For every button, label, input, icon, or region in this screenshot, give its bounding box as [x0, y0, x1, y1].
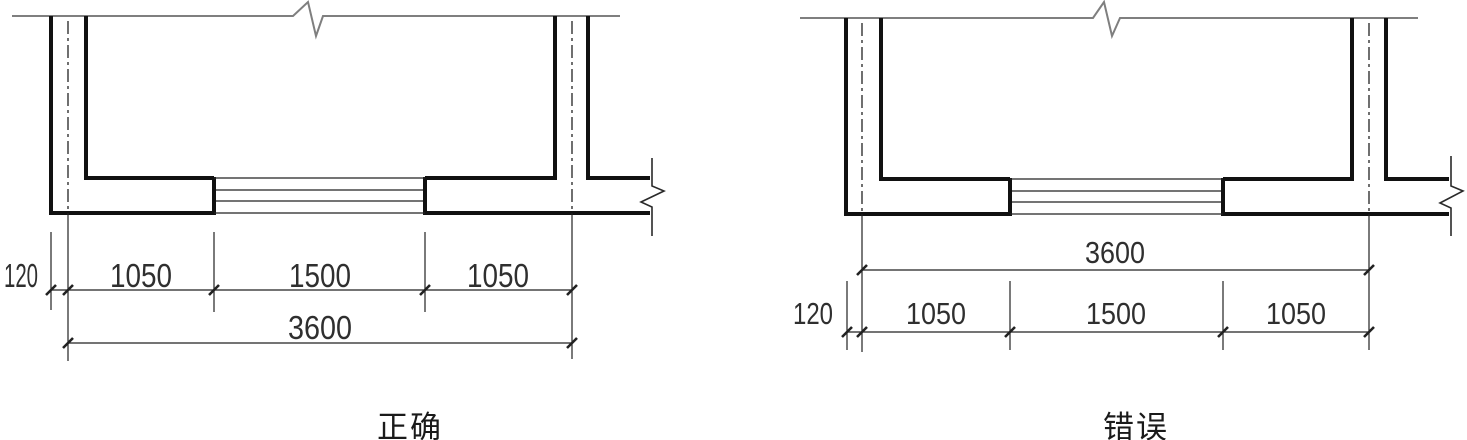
diagram-canvas: 120 1050 1500 1050 3600	[0, 0, 1467, 440]
caption-correct: 正确	[340, 402, 480, 440]
wall-outline	[49, 16, 650, 215]
axis-lines	[68, 21, 572, 213]
dim-middle-label: 1500	[1086, 296, 1146, 331]
window-symbol	[1010, 179, 1223, 214]
dim-left-label: 1050	[906, 296, 966, 331]
figure-wrong: 3600 120 1050 1500 1050	[760, 0, 1467, 372]
dim-offset-label: 120	[4, 257, 38, 294]
wall-break-symbol	[641, 158, 664, 236]
dim-offset-label: 120	[793, 296, 833, 331]
figure-correct: 120 1050 1500 1050 3600	[0, 0, 700, 372]
upper-wall-break-line	[800, 2, 1418, 36]
upper-wall-break-line	[12, 2, 620, 36]
wrong-drawing: 3600 120 1050 1500 1050	[760, 0, 1467, 372]
dim-right-label: 1050	[467, 257, 529, 294]
correct-drawing: 120 1050 1500 1050 3600	[0, 0, 700, 372]
dimension-labels: 3600 120 1050 1500 1050	[793, 235, 1326, 331]
dim-left-label: 1050	[110, 257, 172, 294]
wall-break-symbol	[1440, 156, 1463, 236]
caption-wrong: 错误	[1066, 402, 1206, 440]
dim-middle-label: 1500	[289, 257, 351, 294]
axis-lines	[862, 23, 1369, 214]
dim-right-label: 1050	[1266, 296, 1326, 331]
window-symbol	[214, 178, 425, 213]
dim-overall-label: 3600	[1085, 235, 1145, 270]
dimension-labels: 120 1050 1500 1050 3600	[4, 257, 529, 346]
wall-outline	[844, 18, 1449, 216]
dim-overall-label: 3600	[288, 309, 352, 346]
